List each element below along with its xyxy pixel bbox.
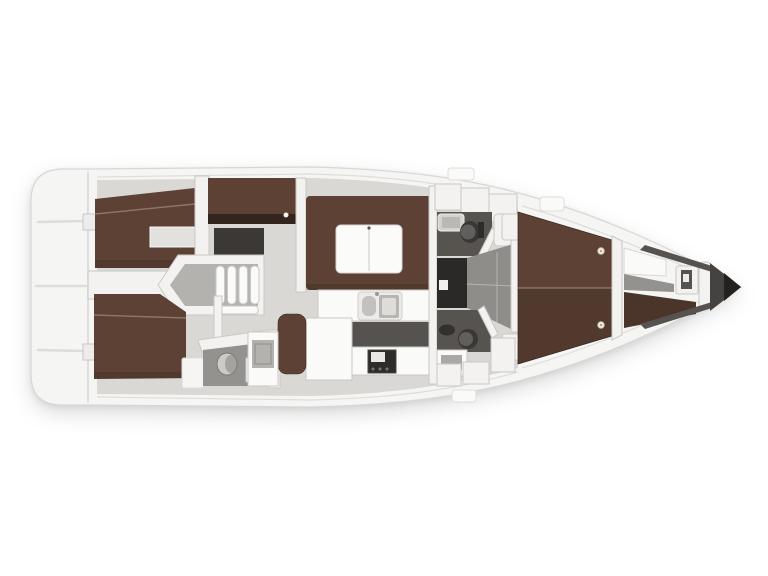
berth-step: [150, 227, 196, 247]
settee-front-shadow: [306, 284, 433, 290]
yacht-layout-page: [0, 0, 768, 576]
salon: [306, 196, 433, 290]
sink-basin-inner: [382, 298, 396, 315]
bow-tip-deep: [724, 273, 741, 301]
deck-hatch-top: [448, 168, 474, 180]
head-cabinet: [437, 364, 461, 386]
sink-basin-small: [362, 296, 376, 316]
sideboard-knob: [284, 213, 289, 218]
bow-cabinet-chip: [683, 274, 689, 282]
dark-cabinet: [214, 228, 264, 256]
faucet: [375, 292, 379, 296]
toilet-lid: [461, 225, 476, 240]
head-cabinet: [461, 188, 489, 214]
head-cabinet: [435, 184, 461, 210]
chart-table: [306, 318, 352, 380]
transom-step-line: [38, 221, 86, 222]
bulkhead: [195, 176, 209, 268]
toilet-shadow: [225, 355, 237, 373]
berth-aft-bottom: [94, 294, 186, 379]
crew-bow-area: [624, 245, 741, 329]
yacht-layout-plan: [0, 0, 768, 576]
stove-panel: [371, 352, 385, 362]
deck-hatch-bow: [540, 197, 564, 211]
reading-light: [598, 248, 604, 254]
sideboard: [208, 178, 298, 216]
stove-knob: [379, 368, 382, 371]
step: [228, 266, 237, 304]
step: [239, 266, 248, 304]
nav-seat: [278, 314, 306, 374]
light-bulb: [600, 250, 603, 253]
head-cabinet: [463, 362, 489, 384]
seat-cube: [182, 358, 204, 388]
mid-bulkhead: [429, 186, 437, 384]
salon-partition-wall: [296, 178, 306, 292]
stove-knob: [372, 368, 375, 371]
stove-knob: [386, 368, 389, 371]
head-cabinet: [491, 338, 515, 372]
shower-handle: [439, 280, 448, 290]
reading-light: [598, 322, 604, 328]
transom-step-line: [38, 350, 86, 351]
forward-bulkhead: [612, 236, 622, 340]
step: [251, 266, 260, 304]
basin-dark: [439, 325, 455, 336]
sink-basin: [442, 217, 460, 228]
transom-notch: [83, 214, 97, 230]
deck-hatch-bottom: [452, 390, 476, 402]
light-bulb: [600, 324, 603, 327]
toilet-lid: [459, 332, 473, 346]
berth-front-shadow: [94, 372, 186, 379]
table-hinge: [367, 226, 370, 229]
partition-wall: [214, 296, 222, 342]
toilet-tank: [478, 222, 484, 238]
galley-floor-pocket: [348, 322, 430, 348]
